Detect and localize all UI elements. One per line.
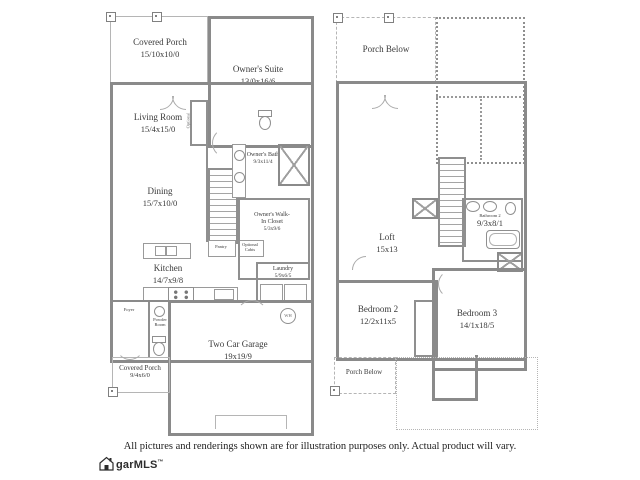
linen-closet-xbox-icon [412, 198, 438, 219]
bathtub-icon [486, 230, 520, 249]
water-heater-icon: WH [280, 308, 296, 324]
laundry-wall [256, 262, 308, 264]
sink-icon [483, 201, 497, 212]
porch-post-icon [330, 386, 340, 396]
dryer-icon [284, 284, 307, 301]
kitchen-sink-icon [155, 246, 166, 256]
bedroom-closet [414, 300, 434, 357]
label-bathroom2: Bathroom 2 9/3x8/1 [468, 214, 512, 228]
shower-xbox-icon [278, 144, 310, 186]
label-porch-below-bottom: Porch Below [336, 368, 392, 376]
mls-house-icon [98, 456, 115, 471]
label-laundry: Laundry 5/9x6/5 [262, 266, 304, 279]
label-bedroom3: Bedroom 3 14/1x18/5 [438, 308, 516, 331]
sink-icon [154, 306, 165, 317]
porch-post-icon [108, 387, 118, 397]
door-arc [212, 128, 242, 158]
door-arc [236, 300, 268, 332]
roofline-outline [396, 357, 538, 430]
label-kitchen: Kitchen 14/7x9/8 [128, 263, 208, 286]
foyer-wall [148, 302, 150, 357]
garage-door [215, 415, 287, 429]
label-covered-porch-top: Covered Porch 15/10x10/0 [118, 37, 202, 60]
label-pantry: Pantry [208, 245, 234, 250]
label-foyer: Foyer [112, 308, 146, 313]
mls-logo-text: garMLS™ [116, 459, 164, 471]
sink-icon [466, 201, 480, 212]
label-garage: Two Car Garage 19x19/9 [190, 339, 286, 362]
laundry-wall [256, 262, 258, 302]
counter-sink-icon [214, 289, 234, 300]
label-bedroom2: Bedroom 2 12/2x11x5 [340, 304, 416, 327]
toilet-icon [259, 116, 271, 130]
label-loft: Loft 15x13 [352, 232, 422, 255]
label-porch-below-top: Porch Below [348, 44, 424, 56]
door-arc [116, 332, 144, 360]
label-optional-fireplace: Optional [185, 113, 190, 129]
porch-post-icon [384, 13, 394, 23]
label-owners-bath: Owner's Bath 9/3x11/4 [246, 152, 280, 165]
label-walk-in-closet: Owner's Walk-In Closet 5/3x9/6 [252, 212, 292, 232]
toilet-icon [153, 342, 165, 356]
mls-logo: garMLS™ [98, 456, 164, 471]
porch-post-icon [152, 12, 162, 22]
floor-plan-sheet: Covered Porch 15/10x10/0 Owner's Suite 1… [0, 0, 640, 480]
washer-icon [260, 284, 283, 301]
sink-icon [234, 172, 245, 183]
kitchen-sink-icon [166, 246, 177, 256]
label-covered-porch-bottom: Covered Porch 9/4x6/0 [110, 364, 170, 380]
porch-post-icon [333, 13, 343, 23]
door-arc [438, 270, 466, 298]
label-dining: Dining 15/7x10/0 [120, 186, 200, 209]
porch-post-icon [106, 12, 116, 22]
disclaimer-text: All pictures and renderings shown are fo… [0, 441, 640, 452]
